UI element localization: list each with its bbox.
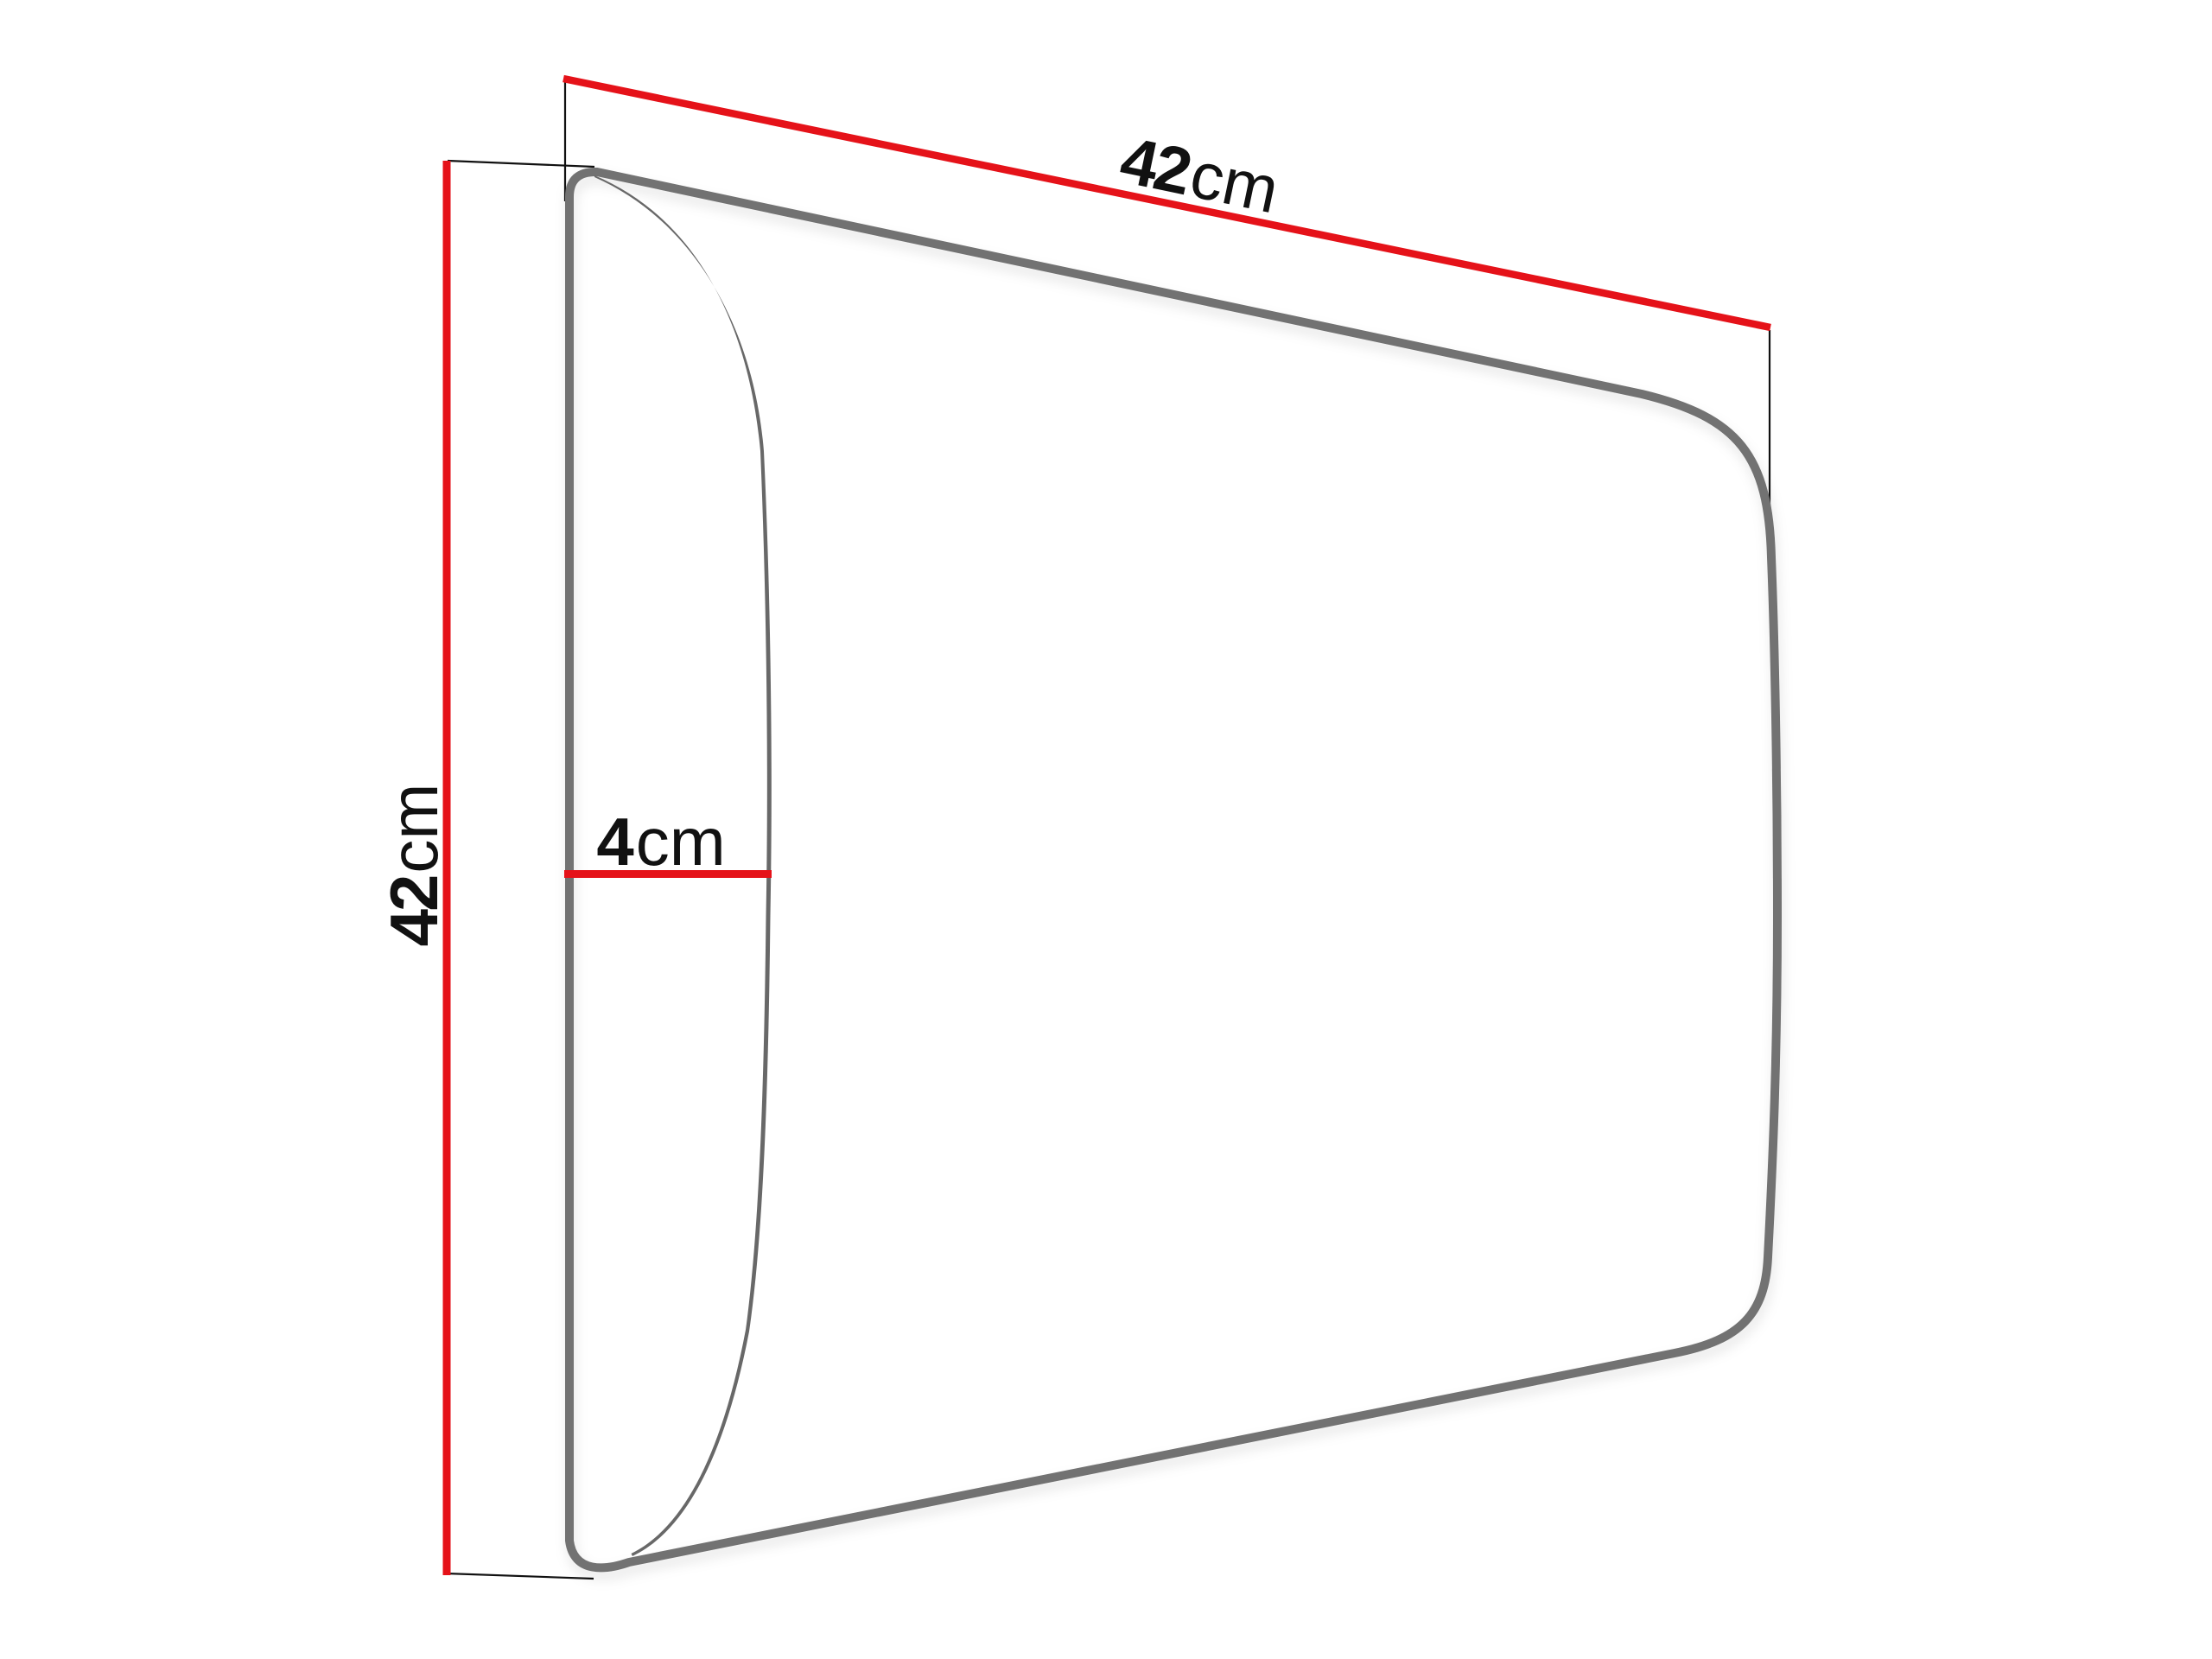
svg-text:42cm: 42cm bbox=[376, 784, 452, 947]
svg-text:4cm: 4cm bbox=[596, 804, 725, 880]
